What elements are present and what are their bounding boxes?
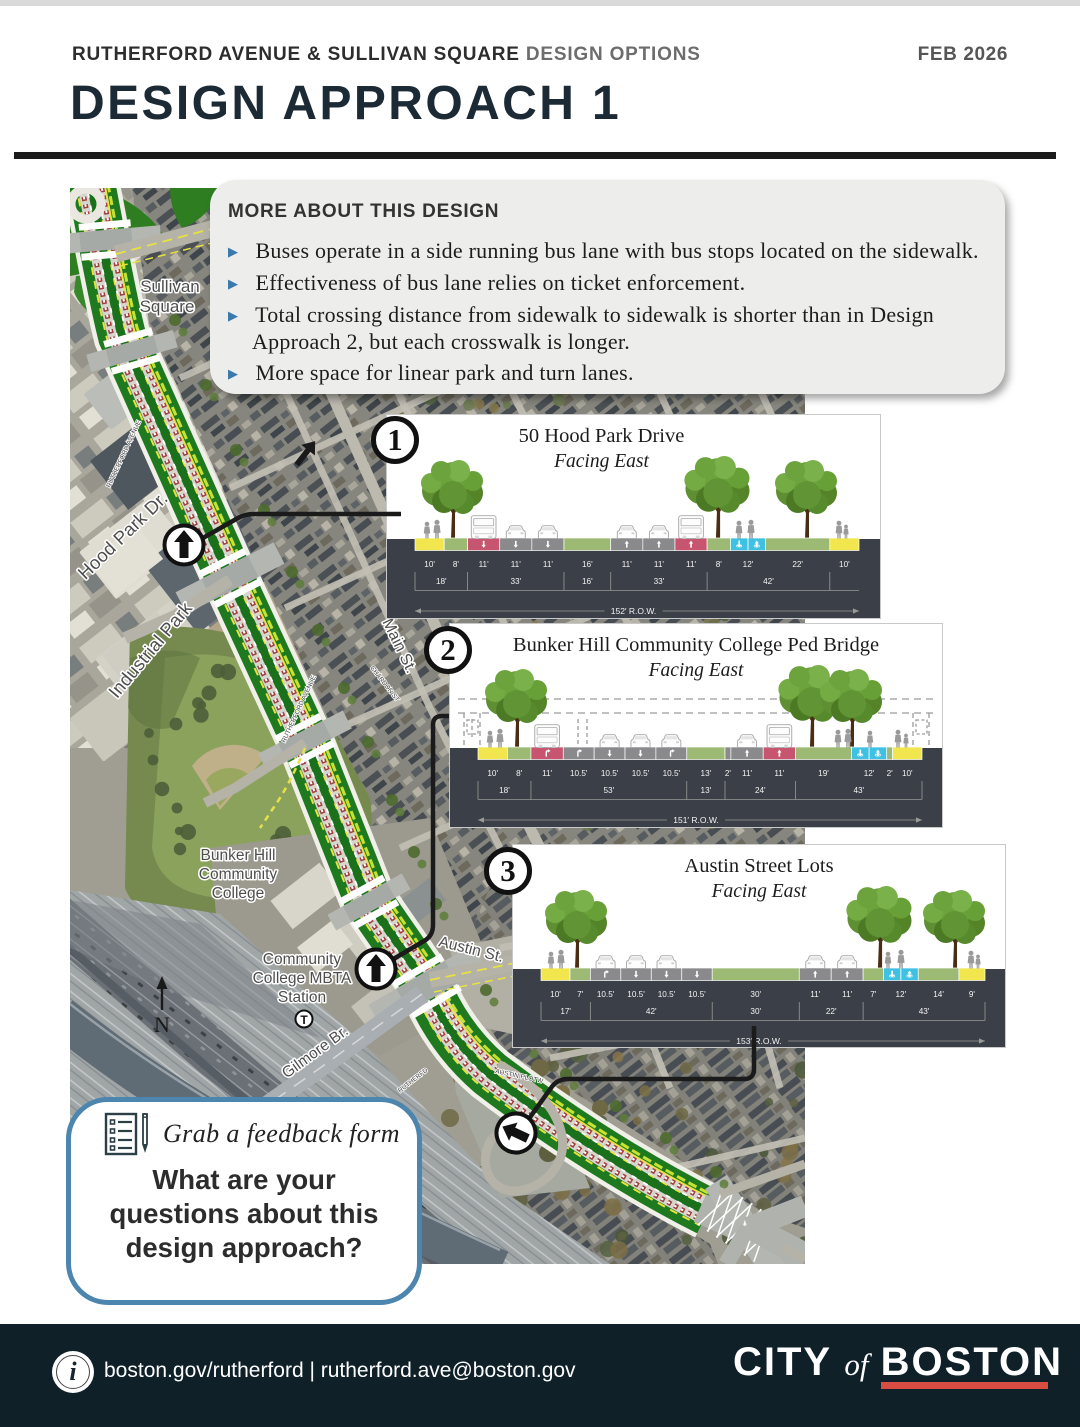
svg-text:30': 30' — [750, 1007, 761, 1016]
svg-text:11': 11' — [511, 560, 521, 569]
svg-text:College MBTA: College MBTA — [253, 970, 352, 987]
svg-text:10.5': 10.5' — [627, 990, 645, 999]
svg-text:14': 14' — [933, 990, 944, 999]
svg-text:2': 2' — [887, 769, 894, 778]
svg-text:24': 24' — [755, 786, 766, 795]
svg-text:11': 11' — [842, 990, 852, 999]
svg-text:42': 42' — [646, 1007, 657, 1016]
svg-text:16': 16' — [582, 577, 593, 586]
svg-text:12': 12' — [743, 560, 754, 569]
svg-text:Community: Community — [263, 951, 342, 968]
svg-text:152′ R.O.W.: 152′ R.O.W. — [611, 606, 657, 616]
svg-text:13': 13' — [701, 769, 712, 778]
svg-text:Facing East: Facing East — [711, 881, 807, 902]
svg-text:43': 43' — [853, 786, 864, 795]
svg-text:Facing East: Facing East — [648, 660, 744, 681]
svg-text:10.5': 10.5' — [570, 769, 588, 778]
svg-text:11': 11' — [774, 769, 784, 778]
svg-text:8': 8' — [453, 560, 460, 569]
svg-text:8': 8' — [516, 769, 523, 778]
svg-text:50 Hood Park Drive: 50 Hood Park Drive — [519, 425, 685, 447]
svg-text:10': 10' — [424, 560, 435, 569]
svg-text:10.5': 10.5' — [632, 769, 650, 778]
svg-text:T: T — [300, 1013, 308, 1027]
svg-text:Bunker Hill Community College: Bunker Hill Community College Ped Bridge — [513, 634, 879, 656]
svg-text:53': 53' — [604, 786, 615, 795]
svg-text:7': 7' — [577, 990, 584, 999]
svg-text:10.5': 10.5' — [688, 990, 706, 999]
svg-text:Facing East: Facing East — [553, 451, 649, 472]
svg-text:9': 9' — [969, 990, 976, 999]
svg-text:33': 33' — [510, 577, 521, 586]
svg-text:10.5': 10.5' — [663, 769, 681, 778]
svg-text:10': 10' — [839, 560, 850, 569]
svg-text:N: N — [154, 1012, 170, 1037]
svg-text:11': 11' — [622, 560, 632, 569]
svg-text:30': 30' — [750, 990, 761, 999]
svg-text:19': 19' — [818, 769, 829, 778]
svg-text:11': 11' — [543, 560, 553, 569]
svg-text:18': 18' — [499, 786, 510, 795]
svg-text:Austin Street Lots: Austin Street Lots — [684, 855, 833, 877]
svg-text:11': 11' — [479, 560, 489, 569]
svg-text:11': 11' — [686, 560, 696, 569]
svg-text:Community: Community — [199, 866, 278, 883]
svg-text:Square: Square — [140, 297, 195, 316]
svg-text:18': 18' — [436, 577, 447, 586]
svg-text:11': 11' — [742, 769, 752, 778]
svg-text:11': 11' — [810, 990, 820, 999]
svg-text:10': 10' — [550, 990, 561, 999]
svg-text:17': 17' — [560, 1007, 571, 1016]
svg-text:11': 11' — [542, 769, 552, 778]
svg-text:2': 2' — [725, 769, 732, 778]
svg-text:22': 22' — [826, 1007, 837, 1016]
svg-text:10.5': 10.5' — [601, 769, 619, 778]
svg-text:22': 22' — [792, 560, 803, 569]
svg-text:10.5': 10.5' — [658, 990, 676, 999]
svg-text:12': 12' — [896, 990, 907, 999]
svg-text:153′ R.O.W.: 153′ R.O.W. — [736, 1036, 782, 1046]
svg-text:16': 16' — [582, 560, 593, 569]
svg-text:42': 42' — [763, 577, 774, 586]
svg-text:151′ R.O.W.: 151′ R.O.W. — [673, 815, 719, 825]
svg-text:College: College — [212, 885, 265, 902]
svg-text:8': 8' — [716, 560, 723, 569]
svg-text:33': 33' — [654, 577, 665, 586]
svg-text:13': 13' — [701, 786, 712, 795]
svg-text:10': 10' — [902, 769, 913, 778]
svg-text:7': 7' — [870, 990, 877, 999]
svg-text:10': 10' — [487, 769, 498, 778]
svg-text:Sullivan: Sullivan — [140, 277, 200, 296]
svg-text:12': 12' — [864, 769, 875, 778]
svg-text:Station: Station — [278, 989, 326, 1006]
svg-text:Bunker Hill: Bunker Hill — [201, 847, 276, 864]
svg-text:43': 43' — [919, 1007, 930, 1016]
svg-text:10.5': 10.5' — [597, 990, 615, 999]
svg-text:11': 11' — [654, 560, 664, 569]
